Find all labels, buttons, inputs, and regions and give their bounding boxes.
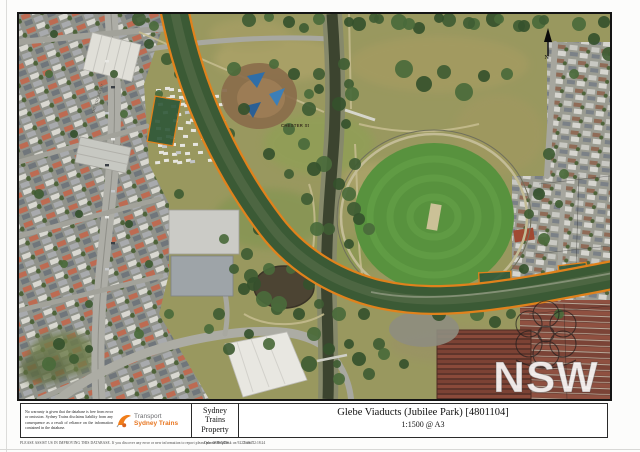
logo-wordmark: Transport Sydney Trains (134, 414, 178, 428)
logo-line-sydney-trains: Sydney Trains (134, 421, 178, 428)
scan-edge (6, 0, 7, 452)
transport-sydney-trains-logo: Transport Sydney Trains (115, 412, 191, 429)
department-line: Trains (192, 415, 238, 424)
scan-edge (0, 449, 640, 450)
title-block: No warranty is given that the database i… (20, 403, 608, 438)
scrub-patch (389, 311, 459, 347)
plan-title: Glebe Viaducts (Jubilee Park) [4801104] (239, 407, 607, 418)
disclaimer-text: No warranty is given that the database i… (21, 408, 115, 433)
scanned-plan-sheet: CHESTER St THE CRESCENT N No warranty is… (0, 0, 640, 452)
department-cell: Sydney Trains Property (191, 404, 239, 437)
title-cell: Glebe Viaducts (Jubilee Park) [4801104] … (239, 404, 607, 437)
plan-scale: 1:1500 @ A3 (239, 420, 607, 429)
north-label: N (545, 55, 550, 61)
title-block-disclaimer-cell: No warranty is given that the database i… (21, 404, 191, 437)
department-line: Property (192, 425, 238, 434)
waratah-logo-icon (115, 412, 132, 429)
footer-time: Time: 12:18:24 (243, 441, 265, 445)
aerial-map: CHESTER St THE CRESCENT N (17, 12, 612, 401)
terrace-rows-southeast (520, 300, 610, 399)
aerial-map-svg: CHESTER St THE CRESCENT N (19, 14, 610, 399)
footer-date: Date: 08/06/2016 (204, 441, 229, 445)
department-line: Sydney (192, 406, 238, 415)
street-label-chester: CHESTER St (281, 123, 310, 128)
